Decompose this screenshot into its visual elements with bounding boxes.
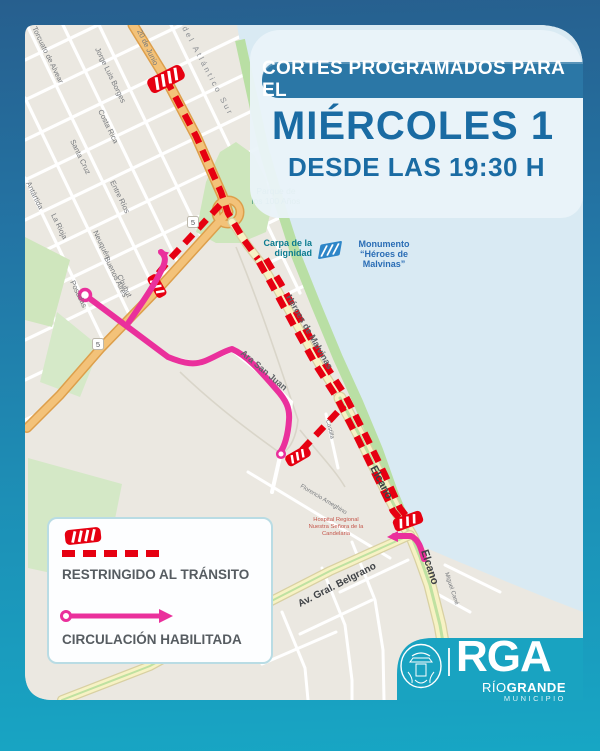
svg-text:5: 5 <box>191 218 195 227</box>
logo-city-grande: GRANDE <box>507 680 566 695</box>
hospital-label: Nuestra Señora de la <box>309 524 365 530</box>
monument-label: Malvinas” <box>363 259 406 269</box>
municipality-logo: RGA RÍOGRANDE MUNICIPIO <box>396 640 582 715</box>
enabled-arrow-swatch <box>59 607 179 625</box>
logo-city-rio: RÍO <box>482 680 507 695</box>
carpa-label: Carpa de la <box>263 238 313 248</box>
hospital-label: Hospital Regional <box>313 517 358 523</box>
logo-divider <box>448 648 450 676</box>
header-banner: CORTES PROGRAMADOS PARA EL <box>262 62 583 98</box>
time-title: DESDE LAS 19:30 H <box>250 152 583 183</box>
enabled-route-end <box>277 450 285 458</box>
carpa-label: dignidad <box>275 248 313 258</box>
barrier-icon <box>60 524 106 548</box>
legend-restricted-label: RESTRINGIDO AL TRÁNSITO <box>62 567 249 582</box>
monument-label: “Héroes de <box>360 249 408 259</box>
logo-acronym: RGA <box>456 632 551 682</box>
hospital-label: Candelaria <box>322 531 351 537</box>
svg-text:5: 5 <box>96 340 100 349</box>
legend-box: RESTRINGIDO AL TRÁNSITO CIRCULACIÓN HABI… <box>47 517 273 664</box>
monument-label: Monumento <box>359 239 410 249</box>
legend-enabled-label: CIRCULACIÓN HABILITADA <box>62 632 242 647</box>
route-shield: 5 <box>93 339 104 350</box>
day-title: MIÉRCOLES 1 <box>250 104 576 149</box>
logo-subtitle: MUNICIPIO <box>456 694 566 703</box>
banner-text: CORTES PROGRAMADOS PARA EL <box>262 58 583 102</box>
poster: 5 5 Torcuato de Alvear Jorge Luis Borges… <box>0 0 600 751</box>
restricted-line-swatch <box>62 550 164 557</box>
logo-city: RÍOGRANDE <box>456 680 566 695</box>
route-shield: 5 <box>188 217 199 228</box>
crest-icon <box>398 642 444 690</box>
